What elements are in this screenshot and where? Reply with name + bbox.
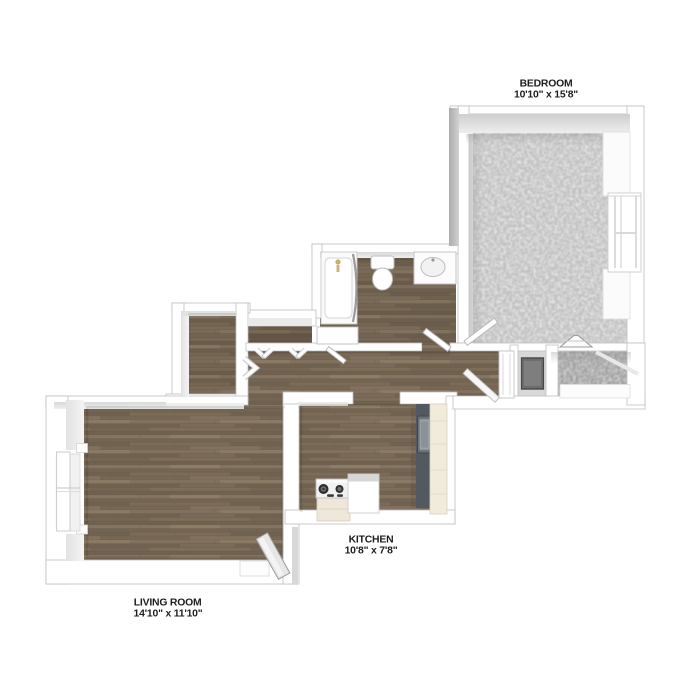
svg-text:KITCHEN: KITCHEN [349,535,394,546]
svg-text:10'8" x 7'8": 10'8" x 7'8" [345,546,398,557]
svg-text:14'10" x 11'10": 14'10" x 11'10" [133,609,202,620]
svg-text:LIVING ROOM: LIVING ROOM [134,597,202,608]
svg-text:BEDROOM: BEDROOM [520,79,573,90]
svg-text:10'10" x 15'8": 10'10" x 15'8" [514,89,578,100]
